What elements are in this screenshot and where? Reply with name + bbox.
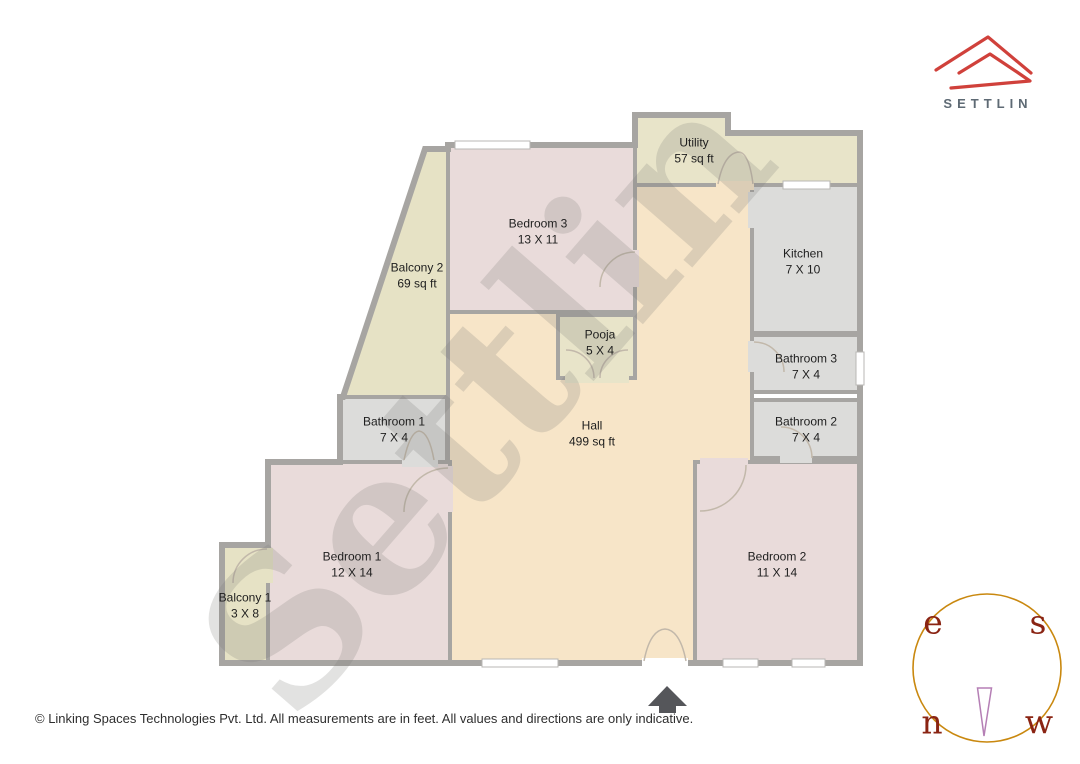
room-dims: 7 X 4 [775,430,837,446]
room-dims: 57 sq ft [674,151,713,167]
room-name: Hall [569,418,615,434]
bathroom3-window [856,352,864,385]
compass-south-label: s [1030,603,1047,642]
compass-west-label: w [1025,703,1053,742]
room-label-balcony1: Balcony 1 3 X 8 [219,590,272,621]
room-label-bathroom1: Bathroom 1 7 X 4 [363,414,425,445]
entrance-arrow-icon [648,686,687,713]
room-dims: 7 X 4 [775,367,837,383]
room-label-bedroom1: Bedroom 1 12 X 14 [323,549,382,580]
pooja-door-gap [565,374,629,383]
hall-window [482,659,558,667]
bathroom2-door-gap [780,454,812,463]
room-dims: 12 X 14 [323,565,382,581]
settlin-logo-icon [936,37,1031,88]
room-label-balcony2: Balcony 2 69 sq ft [391,260,444,291]
room-name: Pooja [585,327,616,343]
room-name: Kitchen [783,246,823,262]
rooms-layer [222,115,860,663]
room-label-utility: Utility 57 sq ft [674,135,713,166]
room-utility-floor [635,115,860,185]
logo-outer-roof [936,37,1031,73]
compass-needle-icon [978,688,992,736]
bathroom1-door-gap [402,458,438,467]
bathroom3-door-gap [748,341,757,372]
bedroom1-door-gap [443,466,453,512]
compass-east-label: e [923,603,943,642]
room-label-kitchen: Kitchen 7 X 10 [783,246,823,277]
room-name: Balcony 2 [391,260,444,276]
compass-north-label: n [921,703,942,742]
balcony1-door-gap [264,548,273,583]
room-dims: 7 X 10 [783,262,823,278]
room-label-hall: Hall 499 sq ft [569,418,615,449]
bedroom2-window-left [723,659,758,667]
room-name: Utility [674,135,713,151]
room-name: Bedroom 1 [323,549,382,565]
room-dims: 69 sq ft [391,276,444,292]
entrance-door-gap [642,658,688,668]
bedroom2-door-gap [700,458,748,467]
kitchen-window [783,181,830,189]
room-label-bathroom2: Bathroom 2 7 X 4 [775,414,837,445]
room-dims: 3 X 8 [219,606,272,622]
kitchen-door-gap [748,192,757,228]
room-dims: 7 X 4 [363,430,425,446]
room-label-bathroom3: Bathroom 3 7 X 4 [775,351,837,382]
bedroom2-window-right [792,659,825,667]
room-label-bedroom2: Bedroom 2 11 X 14 [748,549,807,580]
utility-door-gap [716,181,754,190]
copyright-text: © Linking Spaces Technologies Pvt. Ltd. … [35,711,693,726]
room-name: Bathroom 1 [363,414,425,430]
logo-inner-roof-fold [951,54,1030,88]
room-name: Bathroom 3 [775,351,837,367]
room-label-pooja: Pooja 5 X 4 [585,327,616,358]
floor-plan-page: Settlin Utility 57 sq ft Kitchen 7 X 10 … [0,0,1080,764]
room-name: Bathroom 2 [775,414,837,430]
bedroom3-door-gap [630,250,639,287]
room-dims: 499 sq ft [569,434,615,450]
room-label-bedroom3: Bedroom 3 13 X 11 [509,216,568,247]
room-dims: 5 X 4 [585,343,616,359]
floor-plan-canvas [0,0,1080,764]
room-name: Balcony 1 [219,590,272,606]
settlin-wordmark: SETTLIN [908,96,1068,111]
bedroom3-window [455,141,530,149]
room-name: Bedroom 3 [509,216,568,232]
room-dims: 13 X 11 [509,232,568,248]
room-dims: 11 X 14 [748,565,807,581]
room-name: Bedroom 2 [748,549,807,565]
